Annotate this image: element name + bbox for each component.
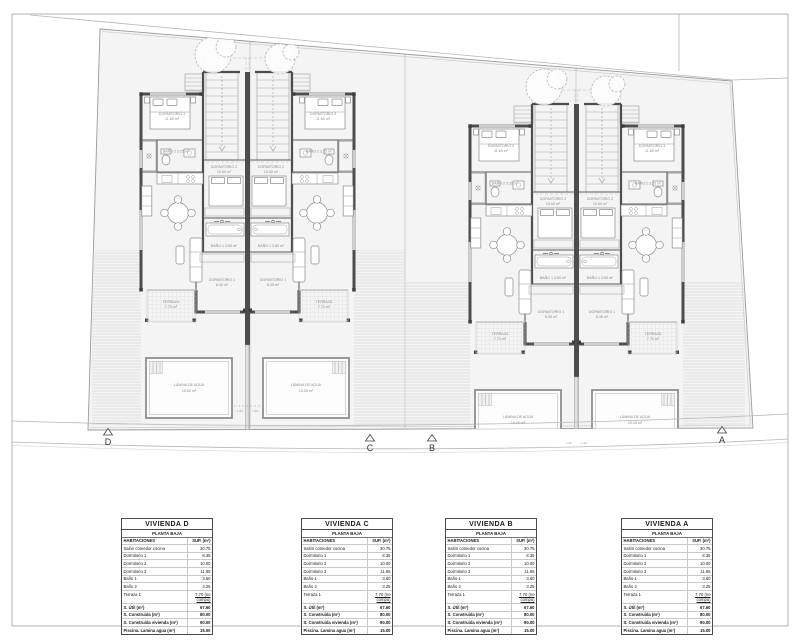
spec-table-vivienda-b: VIVIENDA B PLANTA BAJA HABITACIONESSUP. …	[445, 518, 537, 635]
table-subtitle: PLANTA BAJA	[622, 530, 712, 538]
room-area: 11.65 m²	[645, 149, 660, 153]
room-label: DORMITORIO 2	[258, 165, 284, 169]
spec-table-vivienda-a: VIVIENDA A PLANTA BAJA HABITACIONESSUP. …	[621, 518, 713, 635]
col-habitaciones: HABITACIONES	[302, 538, 367, 545]
table-row: Baño 23.25	[302, 583, 392, 591]
pool-label: LÁMINA DE AGUA	[291, 383, 322, 387]
table-row: Baño 13.60	[122, 576, 212, 584]
table-row: Baño 23.25	[446, 583, 536, 591]
table-summary-row: S. Útil (m²)67.60	[122, 604, 212, 612]
col-habitaciones: HABITACIONES	[622, 538, 687, 545]
table-row: Dormitorio 311.65	[446, 568, 536, 576]
table-row: Dormitorio 311.65	[122, 568, 212, 576]
room-label: BAÑO 1 3.60 m²	[211, 243, 238, 248]
spec-table-vivienda-d: VIVIENDA D PLANTA BAJA HABITACIONESSUP. …	[121, 518, 213, 635]
room-label: DORMITORIO 1	[538, 310, 564, 314]
room-label: TERRAZA	[316, 300, 333, 304]
pool-area: 15.00 m²	[628, 421, 643, 425]
table-row: Dormitorio 311.65	[622, 568, 712, 576]
table-row: Salón comedor cocina30.75	[122, 545, 212, 553]
room-label: TERRAZA	[163, 300, 180, 304]
pool-area: 15.00 m²	[299, 389, 314, 393]
table-row: Dormitorio 210.00	[122, 560, 212, 568]
room-label: DORMITORIO 2	[540, 197, 566, 201]
table-row: Dormitorio 18.35	[446, 553, 536, 561]
table-summary-row: Piscina. Lamina agua (m²)15.00	[622, 627, 712, 634]
room-label: BAÑO 1 3.60 m²	[540, 275, 567, 280]
yard-hatch-a	[683, 282, 745, 426]
table-header-row: HABITACIONESSUP. (m²)	[302, 538, 392, 546]
room-label: DORMITORIO 3	[159, 112, 185, 116]
table-summary-row: S. Útil (m²)67.60	[622, 604, 712, 612]
table-summary-row: S. Construida (m²)80.00	[622, 612, 712, 620]
room-area: 8.35 m²	[545, 315, 558, 319]
drain-label: L-90	[566, 441, 572, 445]
table-title: VIVIENDA A	[622, 519, 712, 530]
table-row: Baño 13.60	[622, 576, 712, 584]
room-label: DORMITORIO 1	[209, 278, 235, 282]
table-row: Dormitorio 210.00	[622, 560, 712, 568]
table-row: Baño 23.25	[622, 583, 712, 591]
table-summary-row: S. Construida (m²)80.00	[122, 612, 212, 620]
table-row: Terraza 17.70 (no compu)	[622, 591, 712, 604]
room-area: 10.00 m²	[546, 202, 561, 206]
room-area: 7.70 m²	[165, 305, 178, 309]
table-summary-row: Piscina. Lamina agua (m²)15.00	[446, 627, 536, 634]
table-subtitle: PLANTA BAJA	[302, 530, 392, 538]
table-summary-row: Piscina. Lamina agua (m²)15.00	[122, 627, 212, 634]
room-area: 7.70 m²	[318, 305, 331, 309]
room-label: DORMITORIO 1	[260, 278, 286, 282]
yard-hatch-b	[405, 282, 470, 426]
room-label: BAÑO 1 3.60 m²	[258, 243, 285, 248]
room-area: 10.00 m²	[593, 202, 608, 206]
table-row: Terraza 17.70 (no compu)	[446, 591, 536, 604]
room-label: DORMITORIO 2	[211, 165, 237, 169]
col-sup: SUP. (m²)	[687, 538, 712, 545]
room-label: DORMITORIO 2	[587, 197, 613, 201]
table-row: Baño 13.60	[446, 576, 536, 584]
room-area: 8.35 m²	[216, 283, 229, 287]
drain-label: L-90	[581, 441, 587, 445]
drain-label: L-90	[237, 409, 243, 413]
room-label: DORMITORIO 3	[488, 144, 514, 148]
table-summary-row: S. Útil (m²)67.60	[302, 604, 392, 612]
room-area: 11.65 m²	[316, 117, 331, 121]
col-sup: SUP. (m²)	[511, 538, 536, 545]
yard-hatch-d	[92, 250, 141, 426]
table-summary-row: S. Construida vivienda (m²)90.00	[302, 619, 392, 627]
table-header-row: HABITACIONESSUP. (m²)	[122, 538, 212, 546]
table-row: Baño 23.25	[122, 583, 212, 591]
table-summary-row: S. Construida vivienda (m²)90.00	[122, 619, 212, 627]
drain-label: L-90	[252, 409, 258, 413]
pool-area: 15.00 m²	[182, 389, 197, 393]
table-summary-row: S. Construida vivienda (m²)90.00	[622, 619, 712, 627]
table-row: Baño 13.60	[302, 576, 392, 584]
table-row: Dormitorio 311.65	[302, 568, 392, 576]
table-title: VIVIENDA B	[446, 519, 536, 530]
table-row: Salón comedor cocina30.75	[302, 545, 392, 553]
table-row: Dormitorio 18.35	[302, 553, 392, 561]
room-label: DORMITORIO 1	[589, 310, 615, 314]
col-sup: SUP. (m²)	[367, 538, 392, 545]
col-sup: SUP. (m²)	[187, 538, 212, 545]
pool-label: LÁMINA DE AGUA	[620, 415, 651, 419]
room-area: 10.00 m²	[217, 170, 232, 174]
table-row: Dormitorio 18.35	[622, 553, 712, 561]
table-row: Terraza 17.70 (no compu)	[122, 591, 212, 604]
table-row: Terraza 17.70 (no compu)	[302, 591, 392, 604]
table-summary-row: S. Construida (m²)80.00	[446, 612, 536, 620]
room-label: TERRAZA	[492, 332, 509, 336]
pool-label: LÁMINA DE AGUA	[174, 383, 205, 387]
table-title: VIVIENDA D	[122, 519, 212, 530]
section-marker-letter: A	[719, 435, 725, 445]
table-row: Dormitorio 210.00	[446, 560, 536, 568]
table-summary-row: Piscina. Lamina agua (m²)15.00	[302, 627, 392, 634]
room-area: 8.35 m²	[267, 283, 280, 287]
table-row: Salón comedor cocina30.75	[622, 545, 712, 553]
plan-sheet: DORMITORIO 3 11.65 m² BAÑO 2 3.25 m² DOR…	[0, 0, 800, 640]
table-summary-row: S. Construida (m²)80.00	[302, 612, 392, 620]
table-header-row: HABITACIONESSUP. (m²)	[446, 538, 536, 546]
col-habitaciones: HABITACIONES	[122, 538, 187, 545]
room-label: TERRAZA	[645, 332, 662, 336]
table-summary-row: S. Útil (m²)67.60	[446, 604, 536, 612]
pool-label: LÁMINA DE AGUA	[503, 415, 534, 419]
table-subtitle: PLANTA BAJA	[446, 530, 536, 538]
table-row: Salón comedor cocina30.75	[446, 545, 536, 553]
table-header-row: HABITACIONESSUP. (m²)	[622, 538, 712, 546]
room-area: 10.00 m²	[264, 170, 279, 174]
room-area: 8.35 m²	[596, 315, 609, 319]
table-row: Dormitorio 18.35	[122, 553, 212, 561]
room-label: DORMITORIO 3	[310, 112, 336, 116]
room-label: BAÑO 2 3.25 m²	[635, 181, 662, 186]
spec-table-vivienda-c: VIVIENDA C PLANTA BAJA HABITACIONESSUP. …	[301, 518, 393, 635]
col-habitaciones: HABITACIONES	[446, 538, 511, 545]
section-marker-letter: B	[429, 443, 435, 453]
room-label: DORMITORIO 3	[639, 144, 665, 148]
table-row: Dormitorio 210.00	[302, 560, 392, 568]
room-label: BAÑO 1 3.60 m²	[587, 275, 614, 280]
room-label: BAÑO 2 3.25 m²	[492, 181, 519, 186]
room-area: 7.70 m²	[647, 337, 660, 341]
room-area: 7.70 m²	[494, 337, 507, 341]
yard-hatch-c	[354, 250, 405, 426]
section-marker-letter: D	[105, 437, 112, 447]
table-subtitle: PLANTA BAJA	[122, 530, 212, 538]
room-area: 11.65 m²	[494, 149, 509, 153]
room-label: BAÑO 2 3.25 m²	[306, 149, 333, 154]
table-title: VIVIENDA C	[302, 519, 392, 530]
table-summary-row: S. Construida vivienda (m²)90.00	[446, 619, 536, 627]
room-label: BAÑO 2 3.25 m²	[163, 149, 190, 154]
room-area: 11.65 m²	[165, 117, 180, 121]
section-marker-letter: C	[367, 443, 374, 453]
